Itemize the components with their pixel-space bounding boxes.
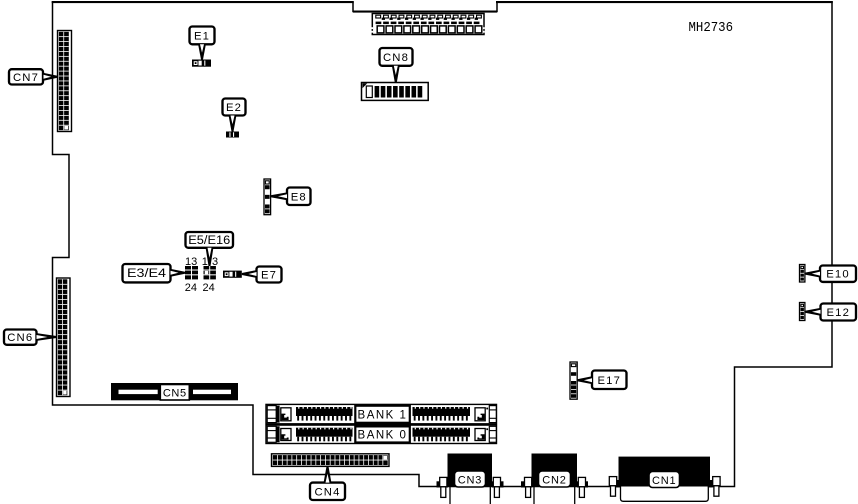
svg-text:BANK 1: BANK 1	[358, 409, 408, 421]
svg-text:CN6: CN6	[7, 332, 33, 344]
svg-text:E1: E1	[194, 30, 210, 42]
svg-text:E10: E10	[826, 269, 849, 281]
svg-text:CN8: CN8	[383, 52, 409, 64]
svg-text:E3/E4: E3/E4	[127, 268, 167, 280]
svg-text:E17: E17	[598, 375, 621, 387]
svg-text:3: 3	[212, 256, 218, 268]
svg-text:24: 24	[185, 282, 197, 294]
svg-text:E7: E7	[261, 270, 277, 282]
svg-text:24: 24	[203, 282, 215, 294]
svg-text:1: 1	[202, 256, 208, 268]
svg-text:CN3: CN3	[458, 474, 482, 486]
svg-text:CN1: CN1	[652, 475, 676, 487]
svg-text:E2: E2	[226, 102, 242, 114]
svg-text:E5/E16: E5/E16	[188, 235, 230, 247]
svg-text:MH2736: MH2736	[689, 21, 734, 36]
svg-text:13: 13	[185, 256, 197, 268]
svg-text:CN5: CN5	[163, 388, 187, 400]
svg-text:CN2: CN2	[542, 474, 566, 486]
svg-text:CN7: CN7	[13, 72, 39, 84]
svg-text:BANK 0: BANK 0	[358, 430, 408, 442]
svg-text:E12: E12	[827, 307, 850, 319]
svg-text:CN4: CN4	[315, 486, 341, 498]
svg-text:E8: E8	[291, 191, 307, 203]
